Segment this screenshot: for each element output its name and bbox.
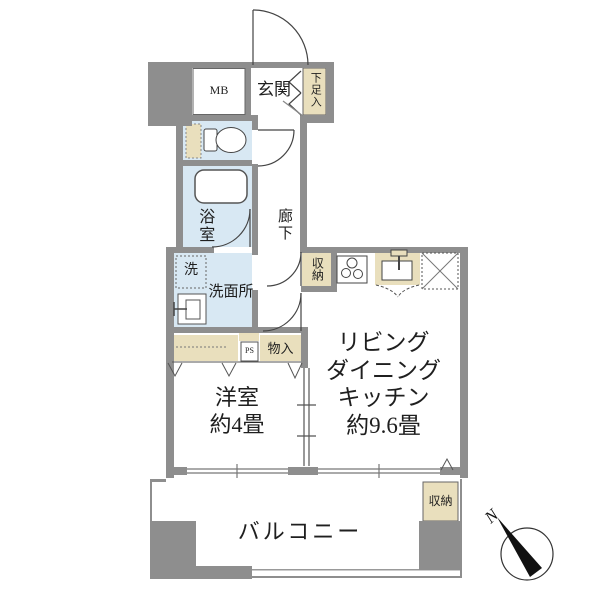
closet-vmark2 [222, 363, 236, 376]
closet-label: 物入 [260, 341, 301, 357]
entrance-door-arc [253, 10, 308, 65]
wall-toilet-bath [183, 160, 252, 166]
entrance-step-line [283, 101, 303, 116]
ldk-line1: リビング [307, 329, 460, 357]
wall-hall-bottom [166, 327, 308, 333]
kitchen-sink [382, 261, 412, 280]
kitchen-faucet-handle [391, 250, 407, 256]
washroom-label: 洗面所 [206, 283, 256, 301]
floorplan-linework: N [0, 0, 600, 600]
balcony-storage-label: 収納 [423, 494, 458, 508]
toilet-door-arc [258, 130, 294, 166]
pipe-space-label: PS [241, 346, 258, 356]
wall-hall-right-upper [300, 122, 307, 253]
wall-sanitary-left [176, 115, 183, 253]
wall-right-of-shoe [326, 62, 334, 123]
western-room-name: 洋室 [172, 384, 302, 411]
balcony-top-stub [150, 479, 166, 482]
wall-bottom-seg2 [288, 467, 318, 475]
bathroom-label: 浴室 [195, 208, 214, 244]
ldk-line2: ダイニング [307, 357, 460, 385]
toilet-bowl [216, 128, 246, 153]
shoe-cabinet-label: 下足入 [308, 72, 321, 108]
closet-left-box [174, 335, 238, 361]
closet-vmark3 [288, 363, 302, 378]
wall-sanitary-top [176, 115, 258, 121]
compass-north-label: N [480, 504, 503, 527]
toilet-vanity [186, 124, 201, 158]
wall-bottom-seg1 [166, 467, 187, 475]
hallway-storage-label: 収納 [310, 257, 324, 281]
balcony-label: バルコニー [160, 519, 440, 545]
wall-bottom-seg3 [440, 467, 468, 475]
bathtub [195, 170, 247, 203]
balcony-left-rail [150, 479, 152, 578]
wall-storage-bottom [301, 286, 337, 292]
counter-swing-left [376, 285, 398, 297]
ldk-door-arc [263, 293, 301, 331]
western-room-label: 洋室 約4畳 [172, 384, 302, 438]
wall-ldk-right [460, 247, 468, 478]
wall-below-shoe [300, 115, 334, 123]
storage-door-arc [267, 252, 301, 286]
entrance-label: 玄関 [248, 80, 300, 100]
toilet-tank [204, 129, 217, 151]
wall-hall-left-b [252, 164, 258, 255]
wall-hall-left-a [252, 121, 258, 130]
laundry-label: 洗 [176, 263, 206, 280]
ldk-size: 約9.6畳 [307, 412, 460, 440]
balcony-right-rail [460, 479, 462, 578]
ldk-label: リビング ダイニング キッチン 約9.6畳 [307, 329, 460, 439]
stove [337, 256, 367, 283]
wall-storage-right [331, 247, 337, 292]
compass: N [480, 504, 553, 580]
floorplan: N MB 玄関 下足入 浴室 洗 洗面所 廊下 収納 PS 物入 洋室 約4畳 … [0, 0, 600, 600]
ldk-line3: キッチン [307, 384, 460, 412]
mb-label: MB [193, 83, 245, 97]
western-room-size: 約4畳 [172, 411, 302, 438]
wall-ldk-top [300, 247, 468, 253]
hallway-label: 廊下 [275, 208, 293, 242]
counter-swing-right [398, 285, 419, 297]
